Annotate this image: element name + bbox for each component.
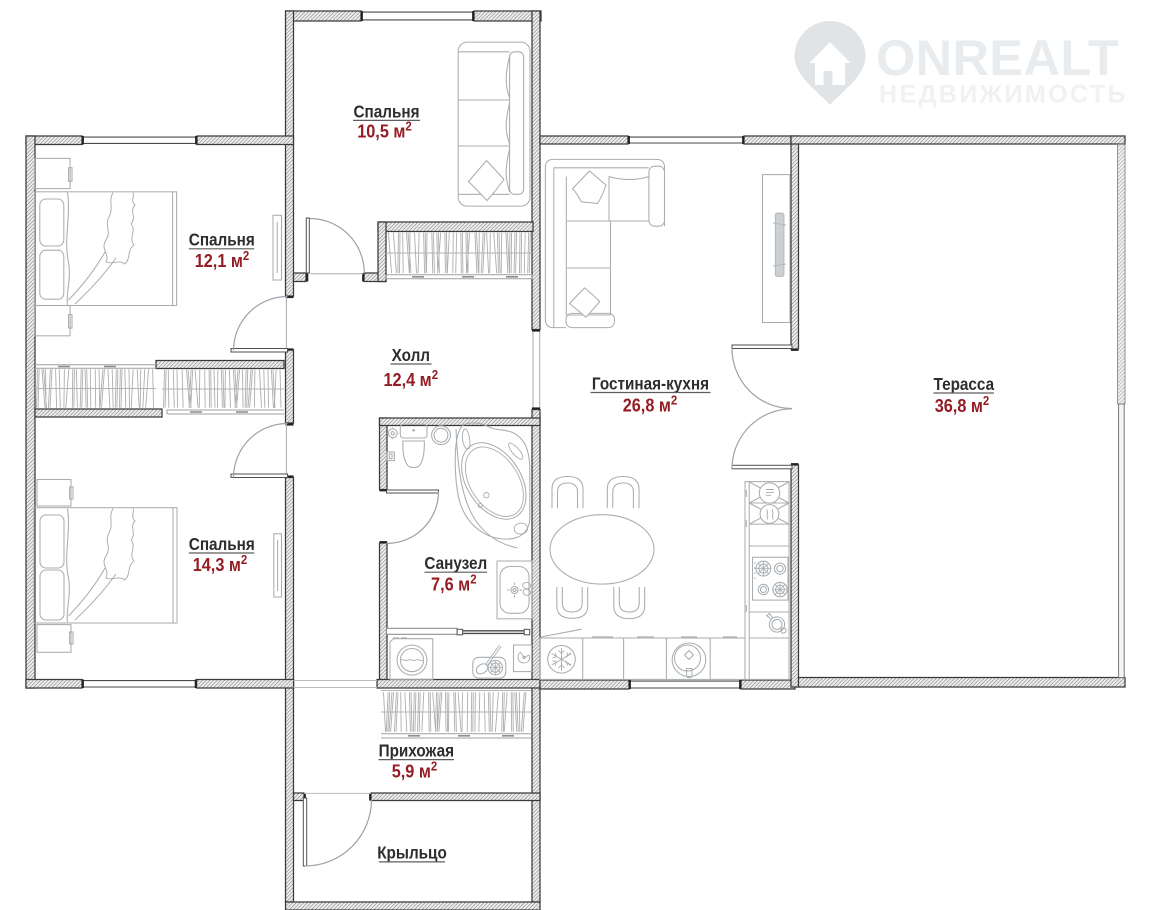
svg-text:Крыльцо: Крыльцо: [377, 842, 447, 862]
svg-text:Холл: Холл: [392, 345, 430, 365]
svg-text:12,4 м2: 12,4 м2: [384, 367, 439, 390]
svg-text:Спальня: Спальня: [189, 534, 255, 554]
svg-text:Прихожая: Прихожая: [379, 740, 454, 760]
svg-text:Спальня: Спальня: [189, 229, 255, 249]
svg-text:Гостиная-кухня: Гостиная-кухня: [592, 373, 709, 393]
svg-text:10,5 м2: 10,5 м2: [357, 119, 412, 142]
svg-text:Терасса: Терасса: [933, 374, 994, 394]
svg-text:12,1 м2: 12,1 м2: [195, 248, 250, 271]
svg-text:ONREALT: ONREALT: [876, 29, 1119, 86]
svg-text:26,8 м2: 26,8 м2: [623, 393, 678, 416]
svg-text:36,8 м2: 36,8 м2: [935, 393, 990, 416]
svg-text:14,3 м2: 14,3 м2: [193, 552, 248, 575]
svg-text:7,6 м2: 7,6 м2: [431, 572, 477, 595]
svg-text:НЕДВИЖИМОСТЬ: НЕДВИЖИМОСТЬ: [879, 81, 1128, 109]
svg-text:Санузел: Санузел: [424, 553, 487, 573]
svg-text:5,9 м2: 5,9 м2: [392, 759, 438, 782]
